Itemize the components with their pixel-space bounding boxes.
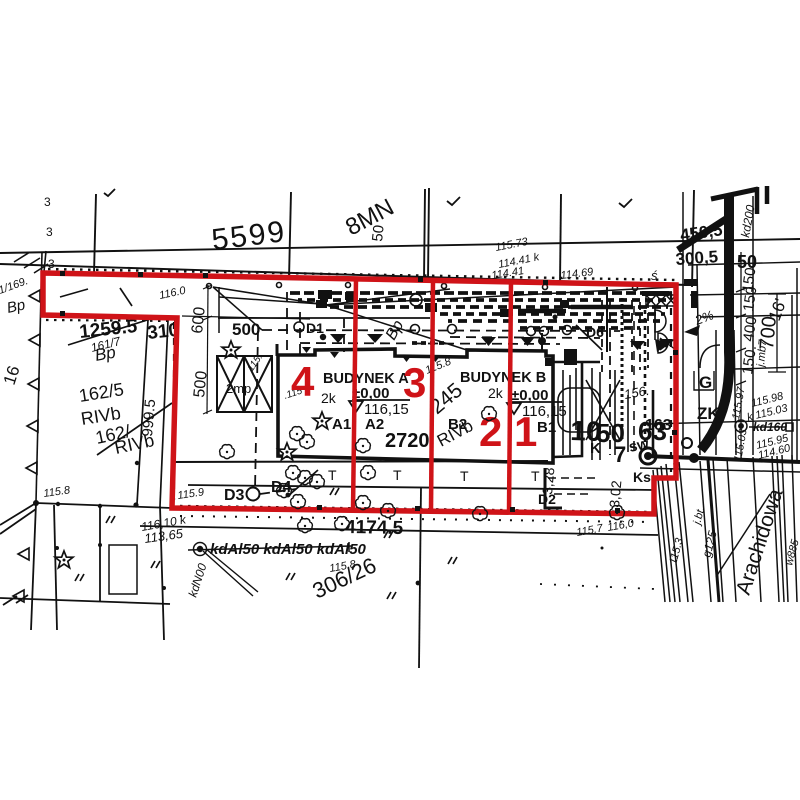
svg-text:D1: D1 [306,320,324,336]
svg-text:K: K [590,440,601,457]
svg-text:T: T [328,467,337,483]
svg-text:2k: 2k [488,385,504,401]
svg-text:150: 150 [740,285,760,312]
svg-text:2720: 2720 [385,430,430,452]
svg-text:500: 500 [232,320,260,339]
svg-text:D3: D3 [224,487,245,504]
svg-text:163: 163 [645,417,672,434]
svg-text:Ks: Ks [633,469,651,485]
svg-text:T: T [531,468,540,484]
svg-text:3,02: 3,02 [606,480,624,509]
svg-text:T: T [460,468,469,484]
svg-text:kd160: kd160 [753,420,787,434]
svg-text:2k: 2k [321,390,337,406]
svg-text:kdAl50 kdAl50 kdAl50: kdAl50 kdAl50 kdAl50 [210,541,367,558]
svg-text:4174.5: 4174.5 [345,517,404,539]
svg-text:G: G [699,373,712,392]
svg-text:Bp: Bp [93,343,117,365]
svg-text:BUDYNEK B: BUDYNEK B [460,370,546,386]
svg-text:600: 600 [189,306,209,334]
svg-text:4: 4 [291,358,315,405]
svg-text:3: 3 [46,225,53,239]
svg-text:300,5: 300,5 [675,247,719,269]
svg-text:3: 3 [403,359,426,406]
svg-text:2mp: 2mp [226,381,251,396]
svg-text:A1: A1 [332,416,351,433]
svg-text:T: T [393,467,402,483]
svg-text:ZK: ZK [697,404,720,423]
svg-text:1: 1 [514,408,537,455]
svg-text:999.5: 999.5 [139,398,159,437]
svg-text:500: 500 [191,370,211,398]
svg-text:50: 50 [369,224,388,242]
svg-text:B1: B1 [537,419,556,436]
svg-text:3: 3 [44,195,51,209]
svg-text:A2: A2 [365,416,384,433]
svg-text:3,28: 3,28 [539,467,557,496]
svg-text:7: 7 [614,442,626,467]
